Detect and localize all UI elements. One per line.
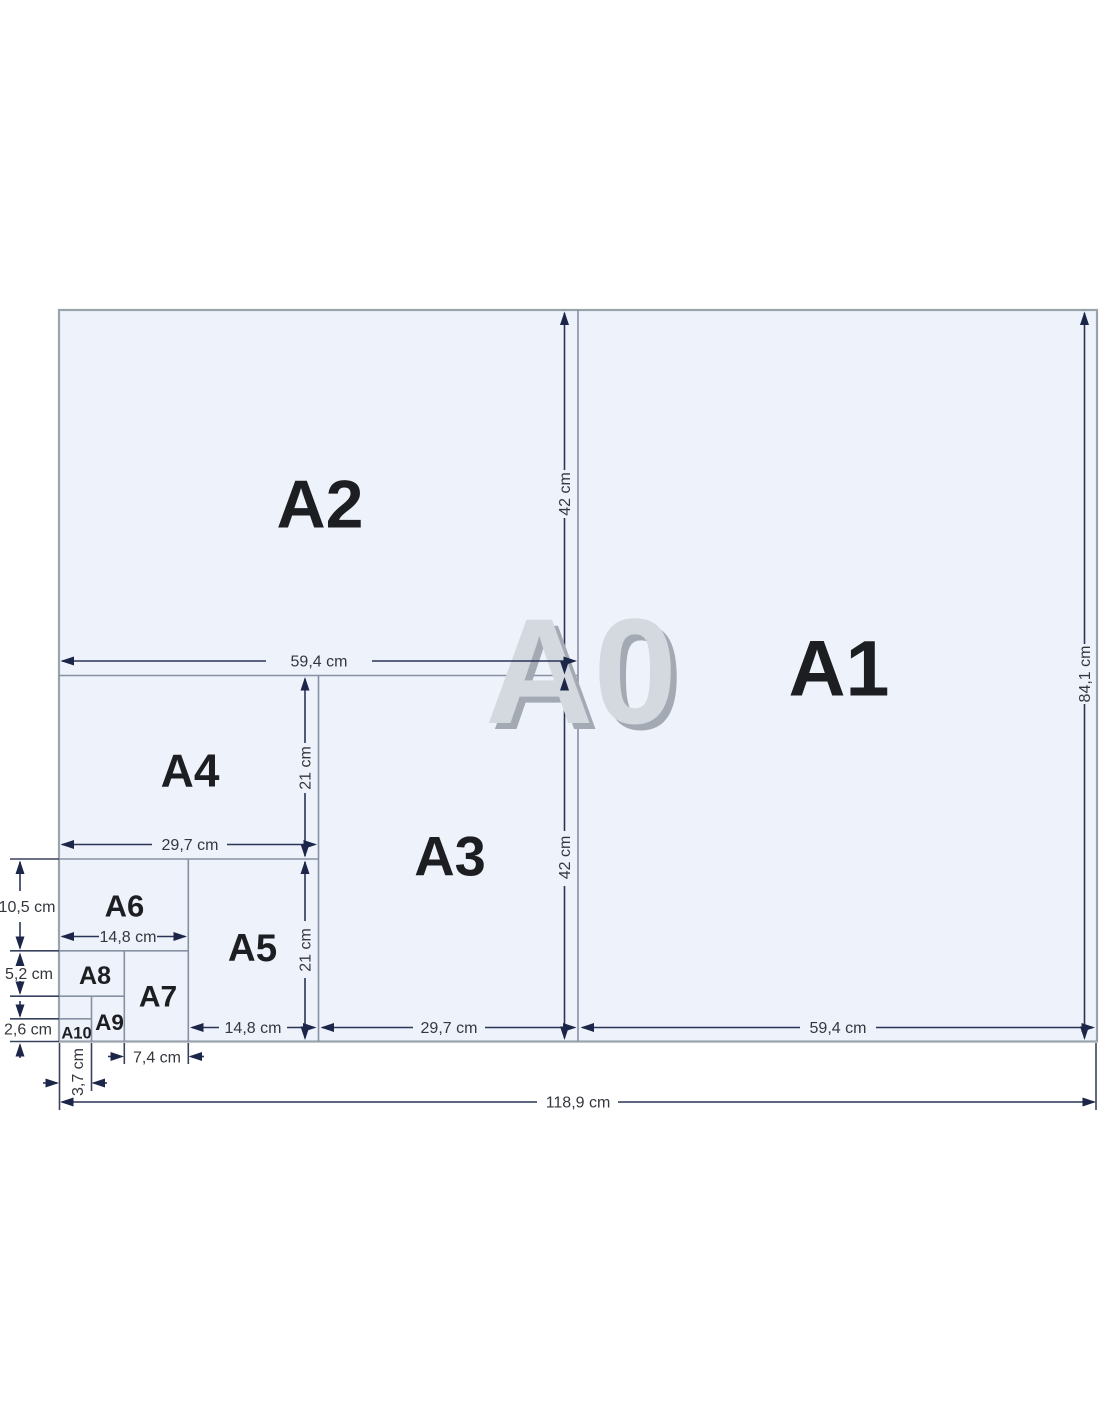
- svg-text:59,4 cm: 59,4 cm: [810, 1020, 867, 1037]
- svg-text:42 cm: 42 cm: [557, 472, 574, 516]
- svg-text:A6: A6: [105, 889, 145, 924]
- svg-text:29,7 cm: 29,7 cm: [421, 1020, 478, 1037]
- svg-text:10,5 cm: 10,5 cm: [0, 899, 55, 916]
- svg-text:A9: A9: [95, 1010, 124, 1035]
- svg-text:A5: A5: [228, 927, 277, 970]
- svg-text:7,4 cm: 7,4 cm: [133, 1050, 181, 1067]
- svg-text:59,4 cm: 59,4 cm: [291, 654, 348, 671]
- svg-text:3,7 cm: 3,7 cm: [70, 1048, 87, 1096]
- svg-text:A7: A7: [139, 981, 177, 1014]
- svg-text:21 cm: 21 cm: [298, 746, 315, 790]
- svg-text:29,7 cm: 29,7 cm: [162, 837, 219, 854]
- svg-text:A8: A8: [79, 962, 111, 990]
- svg-text:5,2 cm: 5,2 cm: [5, 966, 53, 983]
- svg-text:42 cm: 42 cm: [557, 836, 574, 880]
- svg-text:A2: A2: [277, 467, 364, 543]
- svg-text:21 cm: 21 cm: [298, 928, 315, 972]
- svg-text:A1: A1: [789, 624, 890, 713]
- svg-text:84,1 cm: 84,1 cm: [1077, 646, 1094, 703]
- svg-text:14,8 cm: 14,8 cm: [100, 929, 157, 946]
- svg-text:A0: A0: [485, 587, 677, 755]
- svg-text:118,9 cm: 118,9 cm: [546, 1095, 611, 1112]
- svg-text:2,6 cm: 2,6 cm: [4, 1022, 52, 1039]
- svg-text:A10: A10: [61, 1025, 91, 1043]
- svg-text:A4: A4: [161, 745, 220, 797]
- svg-text:14,8 cm: 14,8 cm: [225, 1020, 282, 1037]
- svg-text:A3: A3: [414, 825, 486, 888]
